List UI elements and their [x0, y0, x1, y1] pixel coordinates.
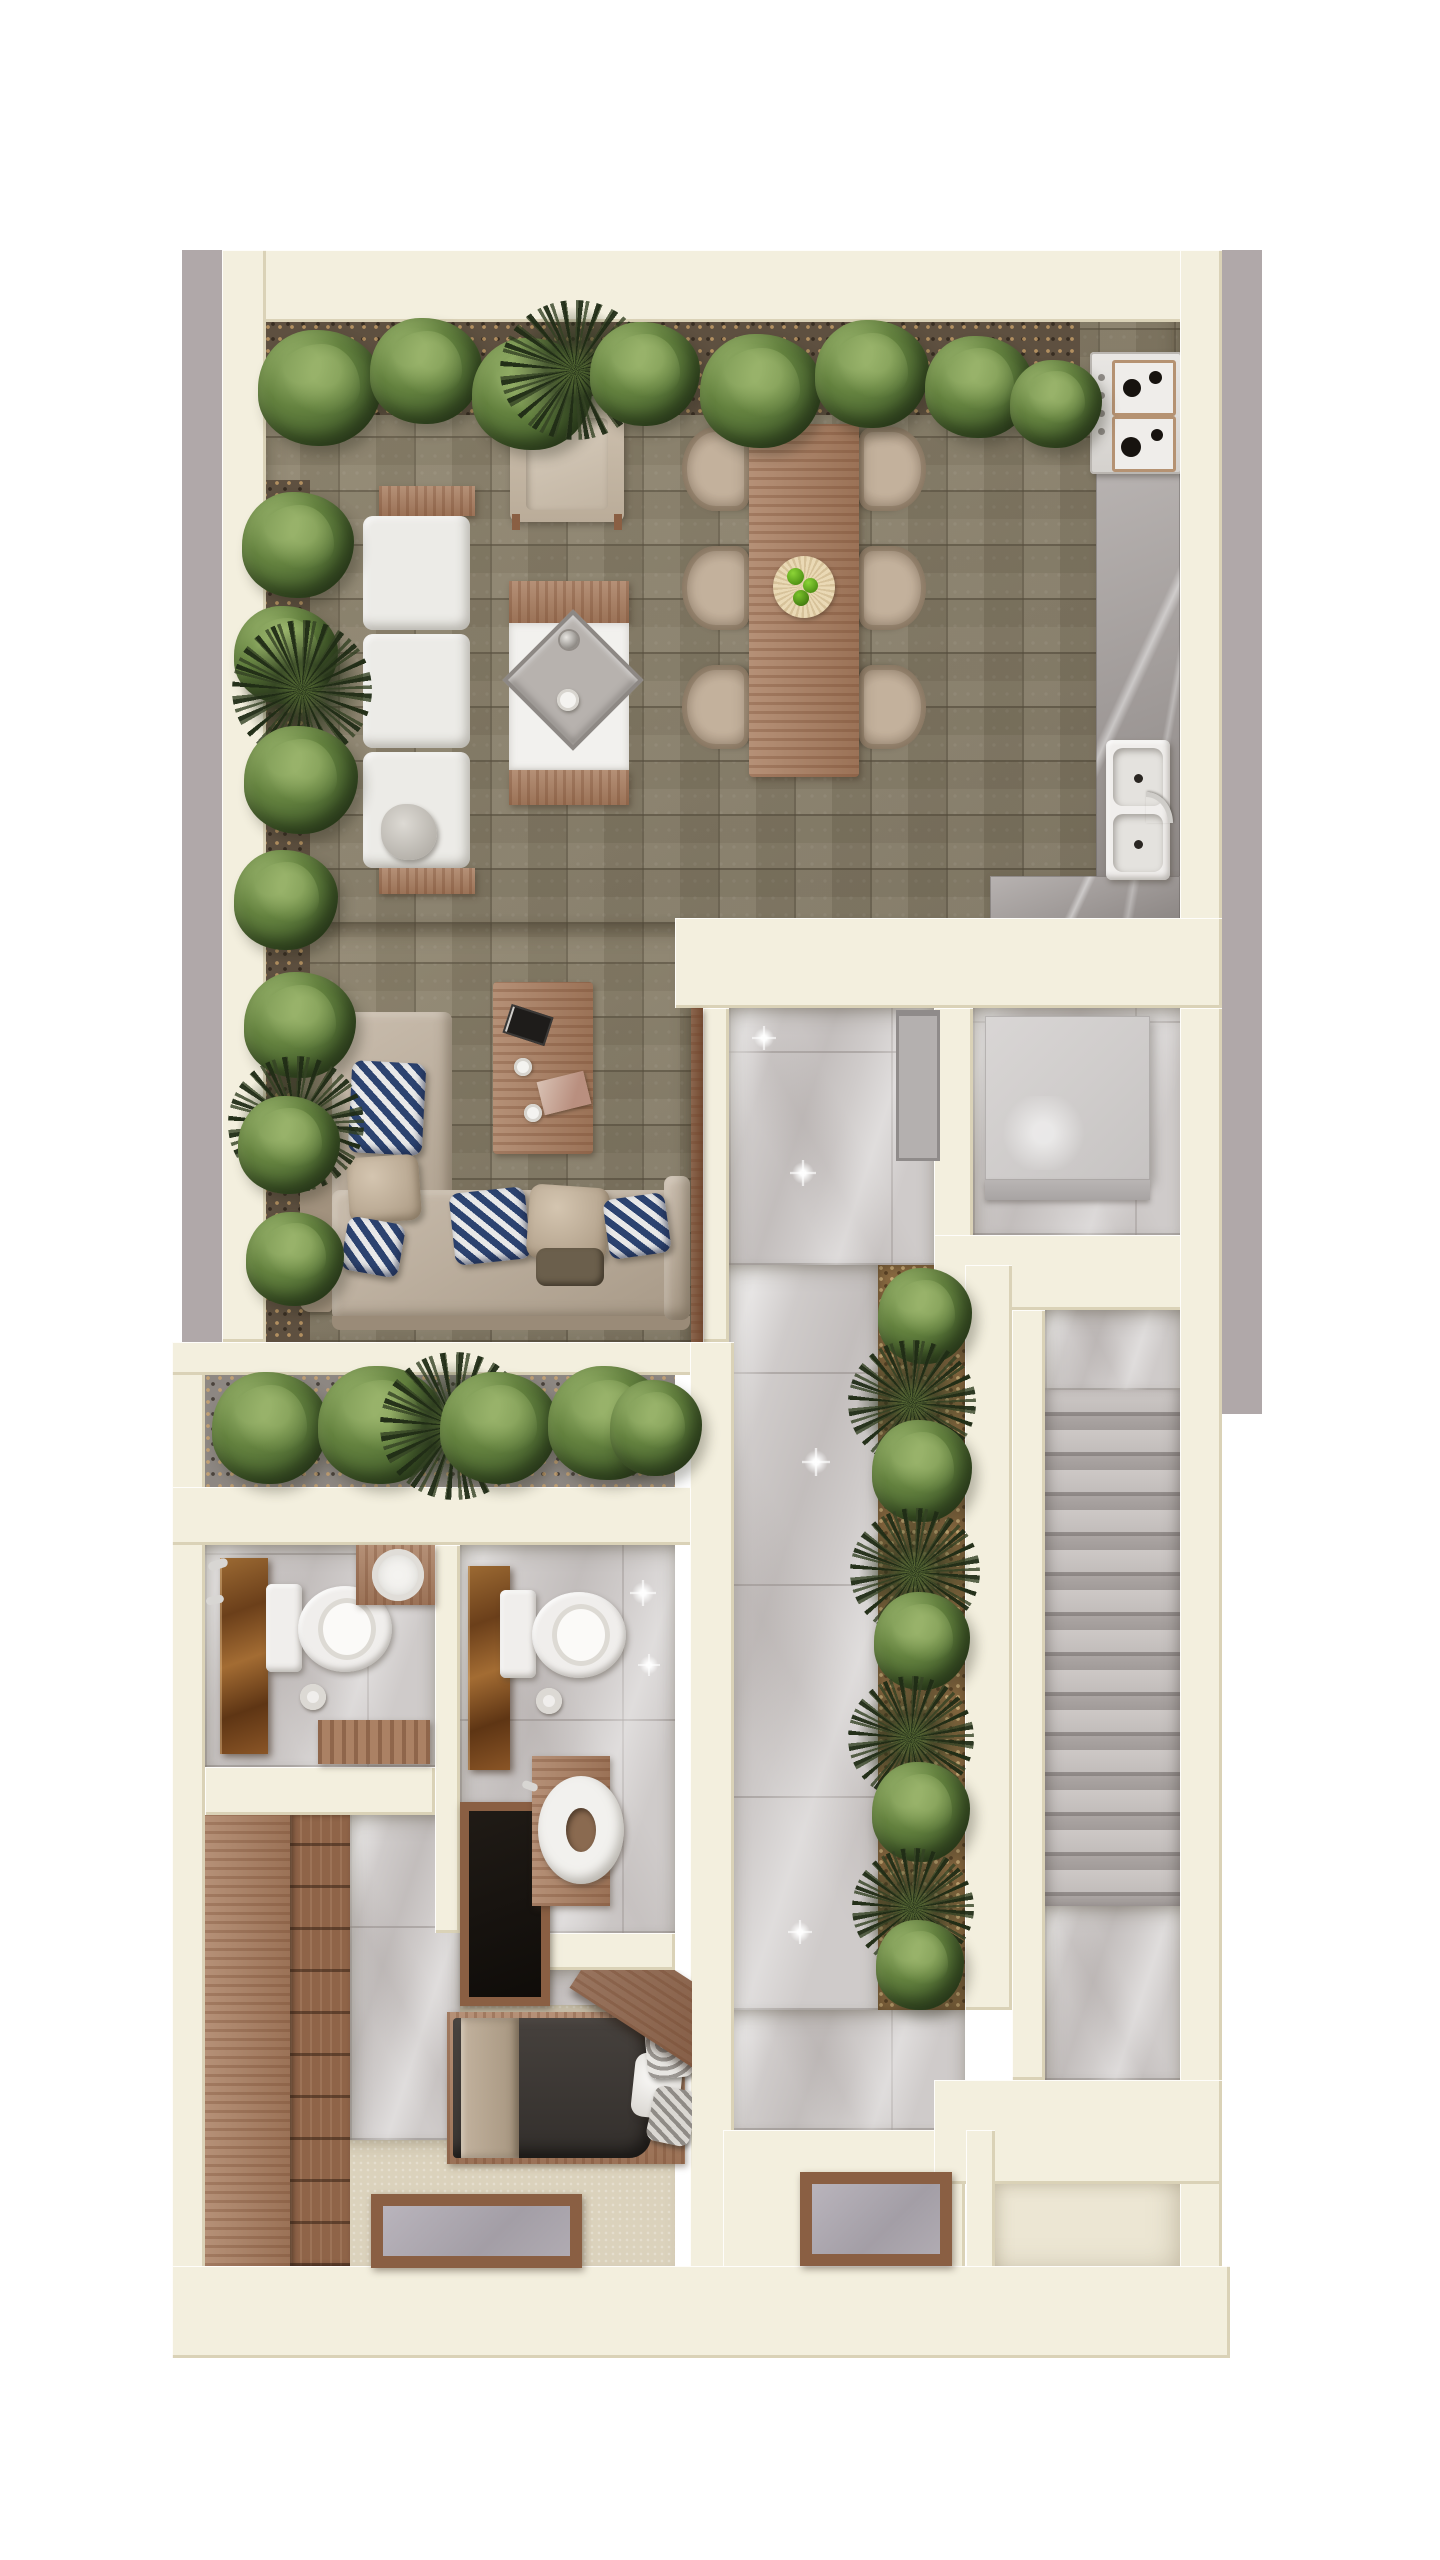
floor-glint: [630, 1580, 656, 1606]
wall-right-upper: [1180, 250, 1222, 1008]
floor-glint: [790, 1160, 816, 1186]
plant-bush: [244, 726, 358, 834]
dining-chair: [859, 546, 926, 630]
entry-room-floor: [995, 2184, 1195, 2272]
lounge-hall-wood-divider: [691, 1008, 703, 1342]
bowl-icon: [557, 689, 579, 711]
floor-glint: [638, 1654, 660, 1676]
ring-basin: [538, 1776, 624, 1884]
stove-grate-bottom: [1112, 416, 1176, 472]
dining-chair: [682, 665, 749, 749]
armchair-leg-icon: [614, 514, 622, 530]
white-sofa-bottom-bench: [379, 868, 475, 894]
white-sofa: [363, 516, 470, 868]
plant-bush: [872, 1420, 972, 1522]
sectional-front-edge: [332, 1316, 690, 1330]
kettle-icon: [560, 631, 578, 649]
plant-bush: [610, 1380, 702, 1476]
plant-bush: [370, 318, 482, 424]
beige-pillow: [346, 1154, 422, 1225]
toilet2-seat: [552, 1604, 610, 1666]
cup-icon: [524, 1104, 542, 1122]
magazine-light: [537, 1071, 592, 1116]
toilet1-tank: [266, 1584, 302, 1672]
toilet1-seat: [318, 1598, 376, 1660]
plant-bush: [874, 1592, 970, 1690]
cup-icon: [514, 1058, 532, 1076]
chevron-pillow: [602, 1192, 672, 1260]
storage-box-sheen: [998, 1096, 1089, 1170]
toilet2-tank: [500, 1590, 536, 1678]
stove-knob-icon: [1098, 374, 1105, 381]
apple-icon: [787, 568, 804, 585]
chevron-pillow: [340, 1215, 406, 1278]
toilet2-paper-roll: [536, 1688, 562, 1714]
stove-grate-top: [1112, 360, 1176, 416]
stair-top-landing: [1045, 1310, 1180, 1390]
wall-between-bathrooms: [435, 1545, 460, 1933]
round-basin-1: [372, 1549, 424, 1601]
hallway-floor-lower: [729, 2010, 965, 2130]
vanity-partition-1: [220, 1558, 268, 1754]
bedroom-lightwell: [371, 2194, 582, 2268]
plant-bush: [258, 330, 382, 446]
plant-bush: [590, 322, 700, 426]
dining-chair: [859, 427, 926, 511]
fire-table-bottom-board: [509, 770, 629, 805]
hallway-lightwell: [800, 2172, 952, 2266]
storage-gray-box: [985, 1016, 1150, 1180]
wall-hall-left: [703, 1008, 729, 1342]
drain-icon: [1134, 840, 1143, 849]
plant-bush: [872, 1762, 970, 1862]
wall-top: [222, 250, 1222, 322]
plant-bush: [876, 1920, 964, 2010]
plant-bush: [700, 334, 822, 448]
white-sofa-top-bench: [379, 486, 475, 516]
chevron-pillow: [448, 1186, 531, 1266]
bath-mat-1: [318, 1720, 430, 1764]
wall-middle-horizontal: [675, 918, 1222, 1008]
stair-treads: [1045, 1390, 1180, 1906]
plant-bush: [212, 1372, 328, 1484]
dining-chair: [682, 546, 749, 630]
wall-bottom: [172, 2266, 1230, 2358]
burner-icon: [1149, 371, 1162, 384]
faucet-icon: [1146, 792, 1173, 823]
sofa-cushion: [363, 634, 470, 748]
plant-bush: [234, 850, 338, 950]
stove: [1090, 352, 1182, 474]
dining-chair: [859, 665, 926, 749]
burner-icon: [1123, 379, 1141, 397]
plant-bush: [815, 320, 929, 428]
floor-plan-render: [0, 0, 1440, 2560]
sofa-cushion: [363, 516, 470, 630]
drain-icon: [1134, 774, 1143, 783]
floor-glint: [788, 1920, 812, 1944]
wall-stair-left: [1012, 1310, 1045, 2080]
burner-icon: [1151, 429, 1163, 441]
hall-door-panel: [896, 1010, 940, 1161]
stove-knob-icon: [1098, 428, 1105, 435]
apple-icon: [793, 590, 809, 606]
burner-icon: [1121, 437, 1141, 457]
storage-box-shelf-edge: [985, 1180, 1150, 1200]
magazine-dark: [502, 1004, 553, 1046]
wall-bathroom1-bottom: [205, 1767, 435, 1815]
plant-bush: [1010, 360, 1102, 448]
stair-bottom-landing: [1045, 1906, 1180, 2080]
toilet1-paper-roll: [300, 1684, 326, 1710]
sofa-throw-pillow: [381, 804, 437, 860]
coffee-table: [493, 982, 593, 1154]
olive-pillow: [536, 1248, 604, 1286]
fruit-plate: [773, 556, 835, 618]
floor-glint: [802, 1448, 830, 1476]
armchair-leg-icon: [512, 514, 520, 530]
dining-table: [749, 424, 859, 777]
kitchen-sink: [1106, 740, 1170, 880]
ring-basin-hole: [566, 1808, 596, 1852]
bed-throw: [461, 2018, 519, 2158]
exterior-band-right: [1222, 250, 1262, 1414]
floor-glint: [752, 1026, 776, 1050]
plant-bush: [246, 1212, 344, 1306]
plant-bush: [242, 492, 354, 598]
plant-bush: [238, 1096, 340, 1194]
fire-table: [509, 581, 629, 805]
plant-bush: [440, 1372, 558, 1484]
